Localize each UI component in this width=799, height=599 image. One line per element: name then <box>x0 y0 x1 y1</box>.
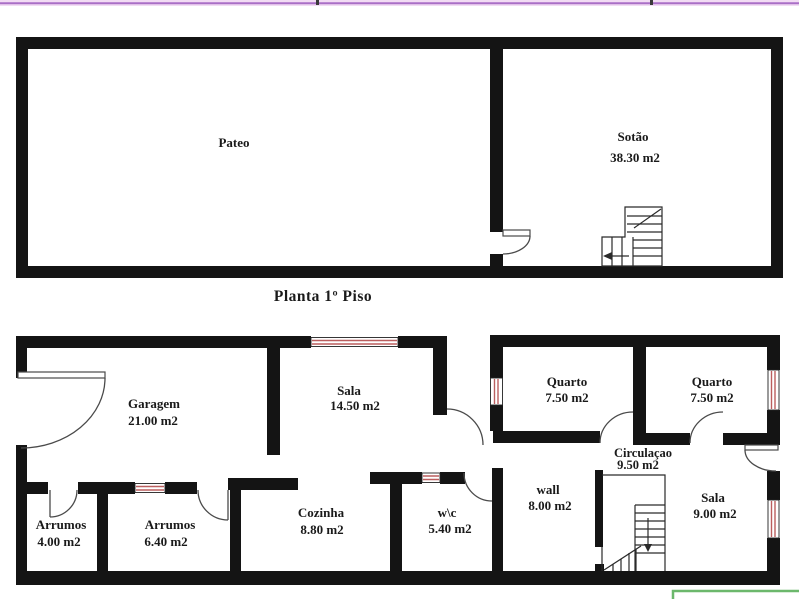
window-wc <box>422 473 440 483</box>
table-border-strip <box>0 0 799 6</box>
window-quarto1-left <box>491 378 503 405</box>
room-label-quarto1: Quarto <box>547 374 587 389</box>
door-sala-pequena <box>745 445 778 471</box>
door-arc <box>745 450 776 471</box>
stairs-ramp-steps <box>613 549 636 571</box>
room-area-wc: 5.40 m2 <box>428 521 471 536</box>
room-label-wc: w\c <box>438 505 457 520</box>
door-arc <box>50 490 77 517</box>
room-label-pateo: Pateo <box>218 135 249 150</box>
room-area-garagem: 21.00 m2 <box>128 413 178 428</box>
door-garagem <box>18 372 105 448</box>
room-label-quarto2: Quarto <box>692 374 732 389</box>
band-tick <box>650 0 653 5</box>
band-tick <box>316 0 319 5</box>
window-frame <box>422 473 440 483</box>
room-label-arrumos2: Arrumos <box>145 517 196 532</box>
room-area-quarto2: 7.50 m2 <box>690 390 733 405</box>
sotao-door <box>503 230 530 254</box>
stairs-cut-line <box>634 209 661 228</box>
stairs-outline <box>602 475 665 571</box>
door-arc <box>690 412 723 443</box>
upper-plan-walls <box>16 37 783 278</box>
green-frame-corner <box>673 591 799 599</box>
stairs-lower <box>602 475 665 571</box>
stairs-treads <box>627 216 662 256</box>
room-label-garagem: Garagem <box>128 396 180 411</box>
upper-floor-plan: Pateo Sotão 38.30 m2 <box>16 37 783 278</box>
room-label-arrumos1: Arrumos <box>36 517 87 532</box>
door-wc <box>464 473 492 501</box>
room-area-quarto1: 7.50 m2 <box>545 390 588 405</box>
room-label-sala-grande: Sala <box>337 383 361 398</box>
door-arc <box>600 412 633 443</box>
window-frame <box>311 338 398 347</box>
room-area-arrumos1: 4.00 m2 <box>37 534 80 549</box>
room-area-cozinha: 8.80 m2 <box>300 522 343 537</box>
door-panel <box>18 372 105 378</box>
stairs-arrow-head <box>644 544 652 552</box>
door-arrumos2 <box>198 490 228 520</box>
door-arc <box>503 236 530 254</box>
door-arc <box>464 473 492 501</box>
floorplan-page: Pateo Sotão 38.30 m2 Planta 1º Piso <box>0 0 799 599</box>
stairs-arrow-head <box>603 252 612 260</box>
plan-caption: Planta 1º Piso <box>274 288 372 305</box>
floorplan-drawing: Pateo Sotão 38.30 m2 Planta 1º Piso <box>0 0 799 599</box>
door-quarto1 <box>600 412 633 443</box>
window-frame <box>491 378 503 405</box>
door-arc <box>21 378 105 448</box>
room-area-arrumos2: 6.40 m2 <box>144 534 187 549</box>
room-area-sotao: 38.30 m2 <box>610 150 660 165</box>
door-arc <box>198 490 228 520</box>
stairs-upper <box>602 207 662 266</box>
room-label-sala-pequena: Sala <box>701 490 725 505</box>
room-area-circulacao: 9.50 m2 <box>617 458 659 472</box>
door-sala-grande <box>447 409 483 445</box>
window-sala-top <box>311 338 398 347</box>
door-arc <box>447 409 483 445</box>
room-area-sala-pequena: 9.00 m2 <box>693 506 736 521</box>
stairs-steps <box>612 237 622 266</box>
room-label-cozinha: Cozinha <box>298 505 345 520</box>
window-interior-garagem <box>135 484 165 493</box>
room-area-hall: 8.00 m2 <box>528 498 571 513</box>
door-arrumos1 <box>50 490 77 517</box>
lower-floor-plan: Garagem 21.00 m2 Sala 14.50 m2 Quarto 7.… <box>16 335 780 585</box>
door-panel <box>503 230 530 236</box>
door-panel <box>745 445 778 450</box>
window-frame <box>768 500 779 538</box>
window-quarto2-right <box>768 370 779 410</box>
room-area-sala-grande: 14.50 m2 <box>330 398 380 413</box>
room-label-sotao: Sotão <box>617 129 648 144</box>
window-frame <box>768 370 779 410</box>
window-frame <box>135 484 165 493</box>
room-label-hall: wall <box>536 482 560 497</box>
door-quarto2 <box>690 412 723 443</box>
window-sala2-right <box>768 500 779 538</box>
